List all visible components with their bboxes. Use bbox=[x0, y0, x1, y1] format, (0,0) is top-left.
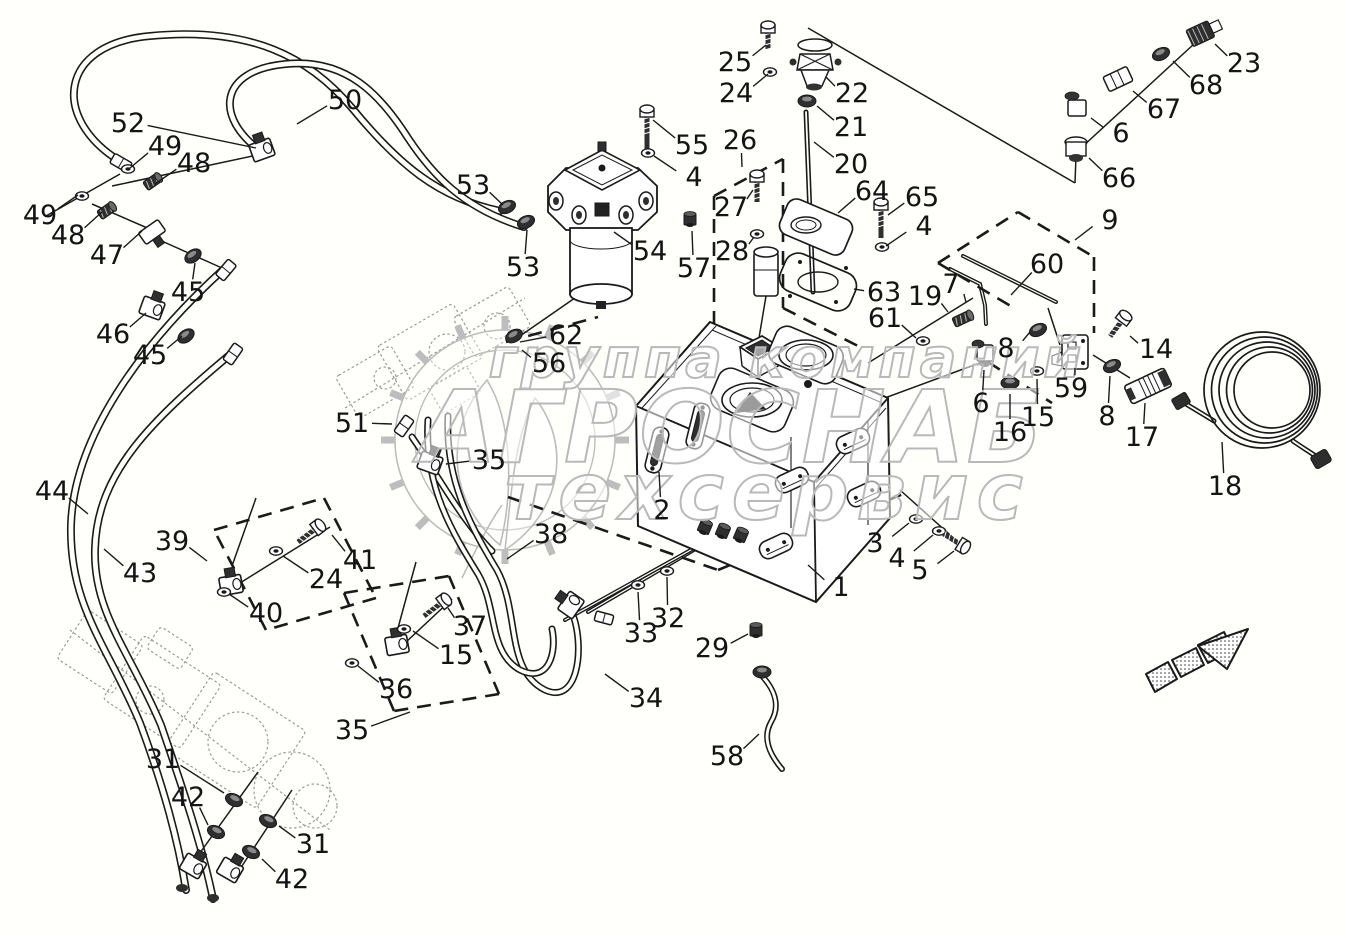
part-callout-44: 44 bbox=[35, 476, 69, 507]
callout-leader-24 bbox=[753, 74, 768, 86]
part-callout-35: 35 bbox=[335, 715, 369, 746]
part-callout-48: 48 bbox=[177, 148, 211, 179]
callout-leader-68 bbox=[1173, 61, 1190, 77]
part-callout-31: 31 bbox=[296, 829, 330, 860]
part-callout-37: 37 bbox=[453, 611, 487, 642]
part-callout-42: 42 bbox=[275, 864, 309, 895]
part-callout-38: 38 bbox=[534, 519, 568, 550]
callout-leader-55 bbox=[653, 120, 675, 138]
callout-leader-4 bbox=[654, 156, 676, 171]
part-callout-19: 19 bbox=[908, 281, 942, 312]
callout-leader-34 bbox=[605, 674, 629, 691]
callout-leader-57 bbox=[692, 231, 693, 255]
part-callout-46: 46 bbox=[96, 319, 130, 350]
part-callout-62: 62 bbox=[549, 320, 583, 351]
callout-leader-19 bbox=[941, 303, 948, 312]
callout-leader-14 bbox=[1130, 336, 1138, 343]
callout-leader-49 bbox=[130, 153, 148, 168]
callout-leader-47 bbox=[123, 231, 142, 248]
callout-leader-40 bbox=[229, 594, 248, 607]
part-callout-34: 34 bbox=[629, 683, 663, 714]
part-callout-50: 50 bbox=[328, 85, 362, 116]
callout-leader-17 bbox=[1144, 403, 1145, 424]
part-callout-36: 36 bbox=[379, 674, 413, 705]
part-callout-15: 15 bbox=[439, 640, 473, 671]
part-callout-39: 39 bbox=[155, 526, 189, 557]
part-callout-18: 18 bbox=[1208, 471, 1242, 502]
callout-leader-5 bbox=[937, 551, 954, 564]
callout-leader-18 bbox=[1222, 442, 1224, 473]
part-callout-24: 24 bbox=[309, 564, 343, 595]
callout-leader-58 bbox=[743, 734, 759, 749]
watermark-line-3: техсервис bbox=[505, 448, 1031, 538]
callout-leader-60 bbox=[1011, 272, 1032, 295]
callout-leader-9 bbox=[1075, 226, 1093, 240]
part-callout-2: 2 bbox=[653, 495, 670, 526]
part-callout-26: 26 bbox=[723, 125, 757, 156]
callout-leader-50 bbox=[297, 106, 327, 124]
part-callout-53: 53 bbox=[456, 170, 490, 201]
part-callout-60: 60 bbox=[1030, 249, 1064, 280]
part-callout-41: 41 bbox=[343, 545, 377, 576]
callout-leader-65 bbox=[888, 203, 904, 215]
part-callout-51: 51 bbox=[335, 408, 369, 439]
callout-leader-32 bbox=[667, 577, 668, 605]
callout-leader-23 bbox=[1215, 44, 1227, 56]
callout-leader-22 bbox=[826, 77, 835, 86]
callout-leader-15 bbox=[413, 631, 439, 649]
callout-leader-33 bbox=[638, 592, 640, 620]
part-callout-29: 29 bbox=[695, 633, 729, 664]
part-callout-4: 4 bbox=[685, 162, 702, 193]
part-callout-28: 28 bbox=[715, 236, 749, 267]
part-callout-40: 40 bbox=[249, 598, 283, 629]
part-callout-65: 65 bbox=[905, 182, 939, 213]
part-callout-58: 58 bbox=[710, 741, 744, 772]
part-callout-6: 6 bbox=[972, 388, 989, 419]
part-callout-1: 1 bbox=[832, 572, 849, 603]
part-callout-53: 53 bbox=[506, 252, 540, 283]
part-callout-31: 31 bbox=[146, 744, 180, 775]
part-callout-9: 9 bbox=[1101, 205, 1118, 236]
callout-leader-25 bbox=[753, 45, 766, 56]
part-callout-25: 25 bbox=[718, 47, 752, 78]
part-callout-68: 68 bbox=[1189, 70, 1223, 101]
part-callout-21: 21 bbox=[834, 112, 868, 143]
part-callout-43: 43 bbox=[123, 558, 157, 589]
part-callout-47: 47 bbox=[90, 240, 124, 271]
callout-leader-39 bbox=[189, 547, 207, 561]
callout-leader-35 bbox=[371, 712, 410, 726]
part-callout-45: 45 bbox=[171, 277, 205, 308]
callout-leader-7 bbox=[964, 294, 966, 302]
watermark-text: группа компаний АГРОСНАБ техсервис bbox=[412, 327, 1085, 538]
hydraulic-parts-diagram: группа компаний АГРОСНАБ техсервис 50524… bbox=[0, 0, 1345, 935]
callout-leader-53 bbox=[525, 230, 527, 254]
part-callout-23: 23 bbox=[1227, 48, 1261, 79]
part-callout-22: 22 bbox=[835, 78, 869, 109]
callout-leader-28 bbox=[749, 237, 754, 244]
part-callout-27: 27 bbox=[714, 192, 748, 223]
callout-leader-66 bbox=[1089, 158, 1102, 171]
callout-leader-49 bbox=[58, 195, 78, 209]
part-callout-4: 4 bbox=[915, 211, 932, 242]
part-callout-57: 57 bbox=[677, 253, 711, 284]
callout-leader-4 bbox=[886, 232, 906, 246]
part-callout-4: 4 bbox=[888, 543, 905, 574]
callout-leader-46 bbox=[130, 313, 146, 327]
part-callout-67: 67 bbox=[1147, 94, 1181, 125]
part-callout-33: 33 bbox=[624, 618, 658, 649]
part-callout-8: 8 bbox=[997, 333, 1014, 364]
part-callout-3: 3 bbox=[866, 528, 883, 559]
part-callout-52: 52 bbox=[111, 108, 145, 139]
callout-leader-42 bbox=[262, 859, 275, 872]
part-callout-6: 6 bbox=[1112, 118, 1129, 149]
part-callout-14: 14 bbox=[1139, 334, 1173, 365]
part-callout-48: 48 bbox=[51, 220, 85, 251]
part-callout-66: 66 bbox=[1102, 163, 1136, 194]
part-callout-35: 35 bbox=[472, 445, 506, 476]
callout-leader-20 bbox=[814, 142, 834, 157]
part-callout-42: 42 bbox=[171, 782, 205, 813]
parts-diagram-page: группа компаний АГРОСНАБ техсервис 50524… bbox=[0, 0, 1345, 935]
part-callout-55: 55 bbox=[675, 130, 709, 161]
callout-leader-6 bbox=[1091, 118, 1103, 127]
part-callout-54: 54 bbox=[633, 236, 667, 267]
callout-leader-67 bbox=[1133, 91, 1147, 102]
part-callout-17: 17 bbox=[1125, 422, 1159, 453]
part-callout-24: 24 bbox=[719, 78, 753, 109]
callout-leader-43 bbox=[104, 549, 123, 566]
part-callout-15: 15 bbox=[1021, 402, 1055, 433]
callout-leader-31 bbox=[279, 826, 295, 838]
callout-leader-48 bbox=[85, 212, 102, 228]
part-callout-61: 61 bbox=[868, 303, 902, 334]
part-callout-64: 64 bbox=[855, 176, 889, 207]
part-callout-56: 56 bbox=[532, 348, 566, 379]
callout-leader-51 bbox=[372, 423, 392, 424]
callout-leader-64 bbox=[838, 198, 855, 213]
part-callout-45: 45 bbox=[133, 340, 167, 371]
callout-leader-21 bbox=[817, 106, 834, 120]
part-callout-8: 8 bbox=[1098, 401, 1115, 432]
callout-leader-53 bbox=[490, 192, 503, 205]
callout-leader-8 bbox=[1108, 376, 1110, 403]
callout-leader-24 bbox=[283, 556, 308, 573]
part-callout-59: 59 bbox=[1054, 373, 1088, 404]
callout-leader-29 bbox=[731, 634, 748, 643]
part-callout-5: 5 bbox=[911, 555, 928, 586]
part-callout-7: 7 bbox=[942, 269, 959, 300]
